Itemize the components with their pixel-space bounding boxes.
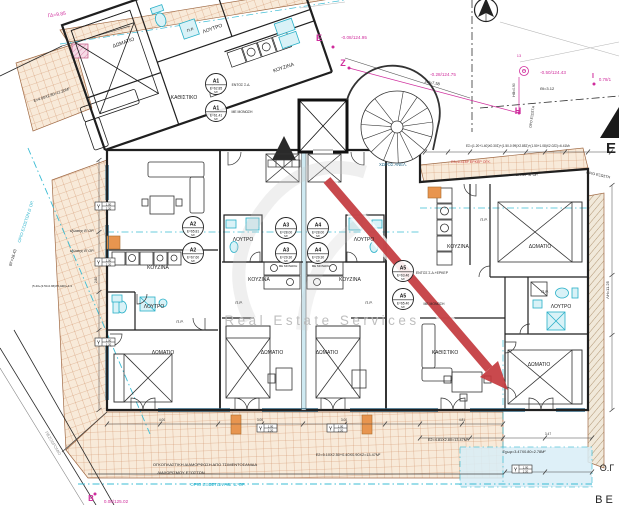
annotation-label: ΠΕΖΟΔΡΟΜΙΟ: [44, 430, 62, 456]
door-swing: [453, 398, 465, 410]
dimension-label: 2.80: [94, 277, 98, 283]
door-swing: [250, 252, 260, 262]
door-swing: [228, 152, 241, 165]
window-stamp: Υ1.002.20: [327, 424, 347, 432]
annotation-label: εξώστης Β' ΟΡ.: [70, 229, 94, 233]
balcony-hatch-areas: [16, 0, 604, 478]
room-label-kitchen: ΚΟΥΖΙΝΑ: [339, 277, 361, 283]
annotation-label: ΟΡΙΟ ΕΞΩΣΤΗ: [586, 171, 611, 180]
annotation-label: ΕΣ=(1.20+1.40)Χ0.30Σ)+(1.50-0.99)Χ2.85Σ)…: [466, 144, 570, 148]
apartment-id: Α2: [190, 222, 197, 228]
survey-label: Ζ: [340, 58, 346, 68]
apartment-id: Α3: [283, 223, 290, 229]
annotation-label: ΜΕ ΜΟΝΩΣΗ: [279, 264, 298, 268]
annotation-label: ΟΓΚΟΠΛΑΣΤΙΚΗ ΔΙΑΜΟΡΦΩΣΗ ΑΠΟ ΤΣΙΜΕΝΤΟΣΑΝΙ…: [153, 462, 258, 467]
apartment-stamp: Α1Ε=62.85Μ²: [206, 74, 227, 95]
annotation-label: ΔΙΑΧΩΡΙΣΜΟΥ ΕΞΩΣΤΩΝ: [157, 470, 204, 475]
insulated-party-wall: [302, 150, 307, 410]
survey-label: 0.78/1: [599, 77, 612, 82]
room-label-living: ΚΑΘΙΣΤΙΚΟ: [171, 95, 198, 101]
annotation-label: ΗΘ=0.90: [512, 83, 516, 97]
bed: [508, 350, 582, 404]
room-label-kitchen: ΚΟΥΖΙΝΑ: [272, 61, 295, 74]
room-label-pr: Π.Ρ.: [235, 300, 242, 305]
annotation-label: Ε3=6.41Μ² ΕΡΚΕΡ ΟΓΚ.: [451, 160, 491, 164]
apartment-stamp: Α4Ε=28.00Μ²: [308, 218, 329, 239]
apartment-id: Α4: [315, 248, 322, 254]
apartment-stamp: Α5Ε=65.40Μ²: [393, 289, 414, 310]
door-swing: [193, 318, 205, 330]
party-wall-band-right: [588, 193, 604, 468]
annotation-label: Ε2=5.10Χ2.50+0.40Χ0.90Χ2=13.47Μ²: [316, 453, 381, 457]
survey-label: Θ: [522, 69, 527, 75]
apartment-stamp: Α1Ε=61.41Μ²: [206, 101, 227, 122]
window-stamp: Υ1.002.20: [95, 258, 115, 266]
door-swing: [479, 266, 490, 277]
annotation-label: (5.40+(3.50-0.96)Χ5.44Σ)+4.3: [32, 284, 72, 288]
room-label-bath: ΛΟΥΤΡΟ: [354, 237, 375, 243]
room-label-bedroom: ΔΩΜΑΤΙΟ: [152, 350, 175, 356]
survey-label: ΓΔ≈9.85: [47, 11, 66, 19]
room-label-pr: Π.Ρ.: [480, 217, 487, 222]
dresser: [352, 370, 366, 388]
apartment-id: Α2: [190, 248, 197, 254]
annotation-label: ΘΙ=3.12: [540, 86, 555, 91]
elevator-shaft: [299, 100, 347, 154]
apartment-area-unit: Μ²: [284, 234, 288, 238]
north-arrow-icon: [475, 0, 498, 22]
annotation-label: Εχωρ=3.47Χ0.80=2.78Μ²: [502, 450, 546, 454]
apartment-id: Α1: [213, 106, 220, 112]
neighbor-lines: [300, 2, 619, 62]
dimension-label: 4.00: [159, 418, 165, 422]
bed: [114, 354, 172, 402]
annotation-label: Β Ε: [595, 494, 613, 505]
watermark-text: Real Estate Services: [224, 313, 419, 328]
room-label-bedroom: ΔΩΜΑΤΙΟ: [528, 362, 551, 368]
annotation-label: εξώστης Β' ΟΡ.: [70, 249, 94, 253]
apartment-id: Α4: [315, 223, 322, 229]
bed: [498, 202, 582, 262]
annotation-label: ΕΝΤΟΣ Σ.Δ.: [232, 83, 251, 87]
window-stamp: Υ1.002.20: [512, 465, 532, 473]
floor-plan-drawing: Real Estate Services Α1Ε=62.85Μ²Α1Ε=61.4…: [0, 0, 619, 505]
window-stamp-height: 2.20: [106, 342, 112, 346]
room-label-bedroom: ΔΩΜΑΤΙΟ: [112, 37, 135, 50]
window-stamp-height: 2.20: [523, 469, 529, 473]
survey-label: 13: [517, 53, 522, 58]
apartment-id: Α1: [213, 79, 220, 85]
room-label-pr: Π.Ρ.: [365, 300, 372, 305]
bed: [226, 326, 270, 398]
apartment-area-unit: Μ²: [191, 233, 195, 237]
annotation-label: Ε2=4.81Χ2.80=13.47Μ²: [428, 438, 469, 442]
apartment-area-unit: Μ²: [191, 259, 195, 263]
kitchen-counter: [437, 188, 452, 265]
annotation-label: ΕΡΚΕΡ Β' ΟΡ.: [516, 173, 539, 177]
annotation-label: ΜΕ ΜΟΝΩΣΗ: [423, 302, 445, 306]
door-swing: [143, 398, 155, 410]
door-swing: [247, 398, 259, 410]
survey-label: -0.08/124.95: [341, 35, 367, 40]
annotation-label: ΟΡΙΟ ΕΞΩΣΤΩΝ Α&Γ Δ' ΟΡ.: [190, 482, 245, 487]
window-stamp: Υ1.002.20: [95, 202, 115, 210]
dimension-label: 3.00: [257, 418, 263, 422]
window-stamp-height: 2.20: [338, 428, 344, 432]
apartment-area-unit: Μ²: [401, 305, 405, 309]
dimension-label: 3.00: [341, 418, 347, 422]
apartment-stamp: Α4Ε=29.30Μ²: [308, 243, 329, 264]
dimension-label: 3.47: [545, 432, 551, 436]
room-label-bath: ΛΟΥΤΡΟ: [202, 23, 224, 35]
door-swing: [235, 398, 247, 410]
desk: [268, 368, 292, 390]
apartment-area-unit: Μ²: [316, 259, 320, 263]
annotation-label: ΜΕ ΜΟΝΩΣΗ: [312, 264, 331, 268]
apartment-id: Α5: [400, 266, 407, 272]
apartment-id: Α5: [400, 294, 407, 300]
door-swing: [441, 398, 453, 410]
balcony-bottom-strip: [66, 412, 503, 478]
apartment-stamp: Α5Ε=63.46Μ²: [393, 261, 414, 282]
door-swing: [333, 398, 345, 410]
annotation-label: Ε: [606, 140, 616, 157]
apartment-area-unit: Μ²: [316, 234, 320, 238]
apartment-area-unit: Μ²: [284, 259, 288, 263]
table: [142, 196, 182, 214]
apartment-area-unit: Μ²: [214, 117, 218, 121]
survey-label: -0.28/124.75: [430, 72, 456, 77]
bed: [316, 326, 360, 398]
window-stamp: Υ1.002.20: [257, 424, 277, 432]
dimension-label: 4.81: [459, 418, 465, 422]
window-stamp-height: 2.20: [106, 262, 112, 266]
apartment-area-unit: Μ²: [214, 90, 218, 94]
floor-plan-canvas: Real Estate Services Α1Ε=62.85Μ²Α1Ε=61.4…: [0, 0, 619, 505]
room-label-elevator-area: ΧΩΡΟΣ ΑΝΕΛ.: [379, 162, 407, 167]
room-label-living: ΚΑΘΙΣΤΙΚΟ: [432, 350, 459, 356]
room-label-bedroom: ΔΩΜΑΤΙΟ: [316, 350, 339, 356]
survey-label: -0.50/124.43: [540, 70, 566, 75]
room-label-pr: Π.Ρ.: [541, 289, 548, 294]
room-label-kitchen: ΚΟΥΖΙΝΑ: [147, 265, 169, 271]
room-label-bath: ΛΟΥΤΡΟ: [233, 237, 254, 243]
annotation-label: ΟΡΟ ΕΞΩΣΤΗ: [528, 105, 535, 128]
annotation-label: ΟΡΙΟ ΕΞΩΣΤΩΝ Δ' ΟΡ.: [16, 200, 34, 243]
apartment-stamp: Α2Ε=67.60Μ²: [183, 243, 204, 264]
stair-arrow: [268, 136, 300, 167]
room-label-bath: ΛΟΥΤΡΟ: [551, 304, 572, 310]
survey-label: Η: [515, 106, 522, 116]
annotation-label: ΛΗ=11.25: [605, 280, 610, 298]
section-triangle: [600, 107, 619, 138]
room-label-bath: ΛΟΥΤΡΟ: [144, 304, 165, 310]
room-label-bedroom: ΔΩΜΑΤΙΟ: [261, 350, 284, 356]
survey-label: Β: [88, 494, 94, 503]
orange-boxes: [107, 187, 441, 434]
wing-rotated: [53, 0, 332, 153]
annotation-label: Ο.Γ: [600, 463, 615, 473]
kitchen-counter: [112, 252, 181, 265]
room-label-bedroom: ΔΩΜΑΤΙΟ: [529, 244, 552, 250]
apartment-id: Α3: [283, 248, 290, 254]
window-stamp-height: 2.20: [106, 206, 112, 210]
annotation-label: ΖΗ=7.58: [424, 79, 441, 87]
annotation-label: ΕΝΤΟΣ Σ.Δ.+ΕΡΚΕΡ: [416, 271, 449, 275]
survey-label: Ι: [592, 73, 594, 80]
door-swing: [347, 252, 357, 262]
annotation-label: ΜΕ ΜΟΝΩΣΗ: [231, 110, 253, 114]
apartment-stamp: Α3Ε=28.00Μ²: [276, 218, 297, 239]
room-label-kitchen: ΚΟΥΖΙΝΑ: [248, 277, 270, 283]
window-stamp: Υ1.002.20: [95, 338, 115, 346]
window-stamp-height: 2.20: [268, 428, 274, 432]
annotation-label: ΒΓ=18.43: [8, 248, 18, 267]
room-label-kitchen: ΚΟΥΖΙΝΑ: [447, 244, 469, 250]
survey-label: 0.08/125.02: [104, 499, 129, 504]
survey-label: Ε: [316, 33, 322, 43]
door-swing: [505, 342, 516, 353]
wing-sofa: [80, 89, 149, 150]
door-swing: [321, 398, 333, 410]
apartment-stamp: Α2Ε=65.81Μ²: [183, 217, 204, 238]
room-label-pr: Π.Ρ.: [176, 319, 183, 324]
apartment-area-unit: Μ²: [401, 277, 405, 281]
apartment-stamp: Α3Ε=29.30Μ²: [276, 243, 297, 264]
